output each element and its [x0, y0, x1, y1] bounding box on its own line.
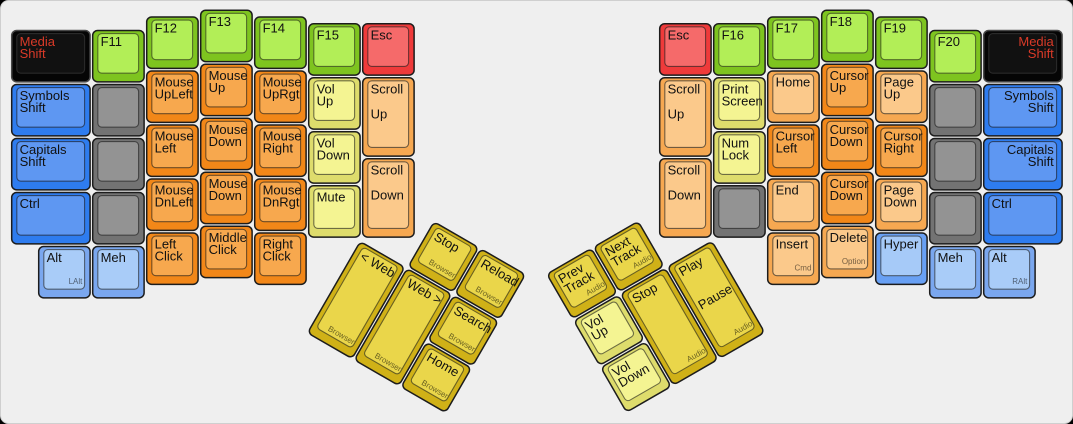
svg-text:F20: F20	[938, 34, 960, 49]
svg-text:Home: Home	[776, 75, 811, 90]
svg-text:MouseUpLeft: MouseUpLeft	[155, 75, 194, 102]
svg-text:Meh: Meh	[938, 250, 963, 265]
svg-text:Cmd: Cmd	[795, 264, 812, 273]
svg-text:Scroll: Scroll	[668, 81, 701, 96]
svg-text:Esc: Esc	[371, 27, 393, 42]
svg-text:F11: F11	[101, 34, 122, 49]
svg-text:End: End	[776, 183, 799, 198]
svg-text:Esc: Esc	[668, 27, 690, 42]
svg-text:F14: F14	[263, 21, 285, 36]
svg-text:Down: Down	[668, 187, 701, 202]
svg-text:Meh: Meh	[101, 250, 126, 265]
svg-text:F12: F12	[155, 21, 177, 36]
svg-text:Option: Option	[842, 257, 866, 266]
svg-text:Mute: Mute	[317, 189, 346, 204]
svg-text:MouseDnLeft: MouseDnLeft	[155, 183, 194, 210]
svg-text:F13: F13	[209, 14, 231, 29]
svg-text:Ctrl: Ctrl	[992, 196, 1012, 211]
svg-text:Scroll: Scroll	[668, 162, 701, 177]
svg-text:F19: F19	[884, 21, 906, 36]
svg-text:Up: Up	[371, 106, 388, 121]
svg-text:MouseUpRgt: MouseUpRgt	[263, 75, 302, 102]
svg-text:Up: Up	[668, 106, 685, 121]
svg-text:MouseDown: MouseDown	[209, 122, 248, 149]
svg-text:Alt: Alt	[47, 250, 63, 265]
svg-text:NumLock: NumLock	[722, 135, 750, 162]
svg-text:F16: F16	[722, 27, 744, 42]
svg-text:MouseDnRgt: MouseDnRgt	[263, 183, 302, 210]
svg-text:F18: F18	[830, 14, 852, 29]
svg-text:VolUp: VolUp	[317, 81, 335, 108]
svg-text:RightClick: RightClick	[263, 237, 294, 264]
svg-text:Delete: Delete	[830, 230, 868, 245]
svg-text:Hyper: Hyper	[884, 237, 919, 252]
svg-text:RAlt: RAlt	[1012, 277, 1028, 286]
svg-text:Down: Down	[371, 187, 404, 202]
svg-text:Insert: Insert	[776, 237, 809, 252]
svg-text:Scroll: Scroll	[371, 81, 404, 96]
svg-text:Alt: Alt	[992, 250, 1008, 265]
svg-text:MouseDown: MouseDown	[209, 176, 248, 203]
svg-text:F17: F17	[776, 21, 798, 36]
svg-text:PageDown: PageDown	[884, 183, 917, 210]
svg-text:Ctrl: Ctrl	[20, 196, 40, 211]
svg-text:F15: F15	[317, 27, 339, 42]
svg-text:LAlt: LAlt	[69, 277, 84, 286]
svg-text:Scroll: Scroll	[371, 162, 404, 177]
